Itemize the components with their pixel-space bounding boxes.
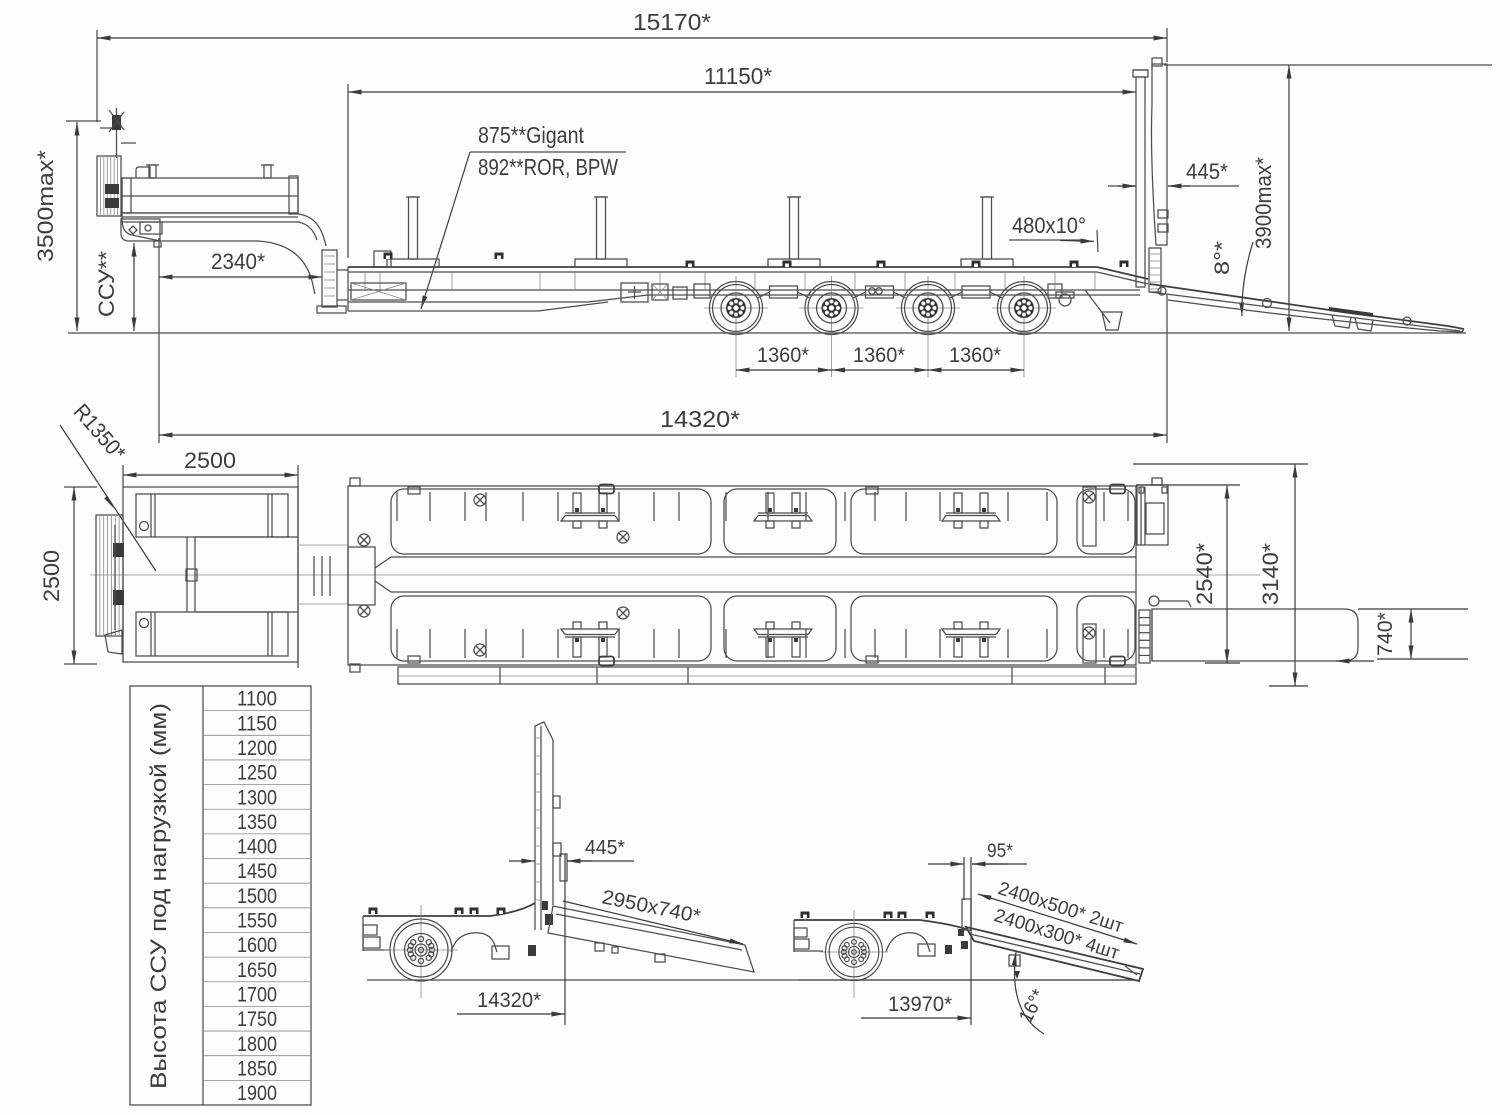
svg-text:3500max*: 3500max* bbox=[33, 150, 58, 262]
svg-text:740*: 740* bbox=[1374, 612, 1397, 656]
svg-text:1700: 1700 bbox=[237, 983, 277, 1006]
svg-text:13970*: 13970* bbox=[888, 993, 952, 1016]
svg-text:1550: 1550 bbox=[237, 910, 277, 933]
svg-text:1500: 1500 bbox=[237, 885, 277, 908]
svg-text:2500: 2500 bbox=[39, 550, 64, 602]
svg-text:1600: 1600 bbox=[237, 934, 277, 957]
svg-text:14320*: 14320* bbox=[477, 989, 541, 1012]
svg-text:1360*: 1360* bbox=[757, 344, 809, 367]
svg-text:2500: 2500 bbox=[184, 448, 236, 473]
svg-text:2340*: 2340* bbox=[211, 249, 265, 274]
svg-text:1300: 1300 bbox=[237, 786, 277, 809]
svg-text:11150*: 11150* bbox=[704, 63, 772, 89]
svg-text:1350: 1350 bbox=[237, 811, 277, 834]
svg-text:1100: 1100 bbox=[237, 688, 277, 711]
svg-text:1800: 1800 bbox=[237, 1033, 277, 1056]
svg-text:1150: 1150 bbox=[237, 712, 277, 735]
svg-text:1850: 1850 bbox=[237, 1057, 277, 1080]
svg-text:8°*: 8°* bbox=[1211, 241, 1234, 275]
svg-text:480x10°: 480x10° bbox=[1012, 213, 1086, 238]
svg-text:3900max*: 3900max* bbox=[1251, 157, 1276, 249]
svg-text:95*: 95* bbox=[987, 841, 1014, 862]
svg-text:1400: 1400 bbox=[237, 836, 277, 859]
svg-text:1200: 1200 bbox=[237, 737, 277, 760]
svg-text:1360*: 1360* bbox=[949, 344, 1001, 367]
svg-text:1360*: 1360* bbox=[853, 344, 905, 367]
svg-text:1900: 1900 bbox=[237, 1082, 277, 1105]
svg-text:1250: 1250 bbox=[237, 762, 277, 785]
svg-text:ССУ**: ССУ** bbox=[94, 251, 119, 317]
svg-text:445*: 445* bbox=[1186, 159, 1228, 184]
svg-text:875**Gigant: 875**Gigant bbox=[478, 122, 585, 148]
svg-text:445*: 445* bbox=[585, 837, 625, 859]
svg-text:1750: 1750 bbox=[237, 1008, 277, 1031]
svg-text:2540*: 2540* bbox=[1192, 543, 1217, 605]
svg-text:1650: 1650 bbox=[237, 959, 277, 982]
svg-text:15170*: 15170* bbox=[633, 9, 711, 35]
svg-text:14320*: 14320* bbox=[660, 406, 740, 432]
svg-text:3140*: 3140* bbox=[1258, 543, 1283, 605]
svg-text:Высота ССУ под нагрузкой (мм): Высота ССУ под нагрузкой (мм) bbox=[146, 703, 171, 1089]
svg-text:892**ROR, BPW: 892**ROR, BPW bbox=[478, 154, 618, 180]
svg-text:1450: 1450 bbox=[237, 860, 277, 883]
